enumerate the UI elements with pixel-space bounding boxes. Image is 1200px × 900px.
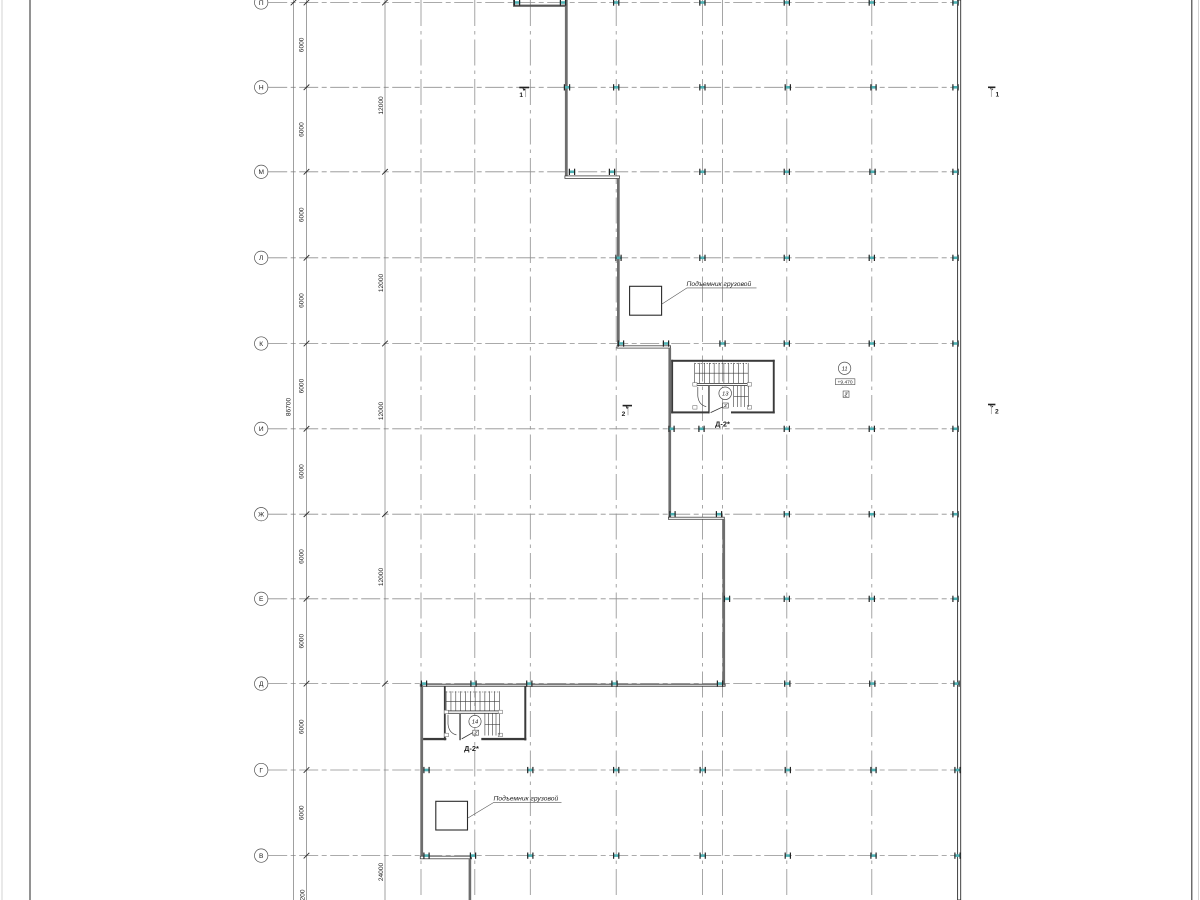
svg-text:6000: 6000: [299, 464, 306, 479]
svg-text:И: И: [259, 426, 264, 433]
svg-text:В: В: [259, 853, 264, 860]
svg-text:24000: 24000: [378, 863, 385, 882]
svg-text:2: 2: [622, 411, 626, 418]
svg-text:12000: 12000: [378, 402, 385, 421]
svg-text:Н: Н: [259, 85, 264, 92]
svg-text:86700: 86700: [286, 398, 293, 417]
svg-text:Д-2*: Д-2*: [464, 744, 479, 753]
svg-text:6000: 6000: [299, 293, 306, 308]
svg-text:14: 14: [472, 720, 478, 726]
svg-text:6000: 6000: [299, 634, 306, 649]
svg-text:6000: 6000: [299, 719, 306, 734]
svg-text:11: 11: [842, 367, 848, 373]
svg-text:6000: 6000: [299, 37, 306, 52]
svg-text:Подъемник грузовой: Подъемник грузовой: [687, 280, 752, 288]
svg-text:200: 200: [300, 889, 307, 900]
svg-text:12000: 12000: [378, 274, 385, 293]
svg-text:2: 2: [474, 730, 477, 735]
svg-text:6000: 6000: [299, 207, 306, 222]
svg-text:Д-2*: Д-2*: [715, 420, 730, 429]
svg-text:+9.470: +9.470: [838, 380, 853, 386]
svg-text:Д: Д: [259, 681, 264, 688]
svg-text:П: П: [259, 0, 264, 7]
svg-text:6000: 6000: [299, 805, 306, 820]
svg-text:1: 1: [519, 92, 523, 99]
svg-text:12000: 12000: [378, 568, 385, 587]
svg-text:Е: Е: [259, 596, 264, 603]
svg-text:Ж: Ж: [258, 512, 264, 519]
svg-text:Л: Л: [259, 255, 263, 262]
svg-text:1: 1: [995, 91, 999, 98]
svg-text:6000: 6000: [299, 378, 306, 393]
svg-text:2: 2: [724, 403, 727, 408]
svg-text:Подъемник грузовой: Подъемник грузовой: [494, 795, 559, 803]
svg-text:Г: Г: [259, 767, 263, 774]
svg-text:6000: 6000: [299, 122, 306, 137]
svg-text:К: К: [259, 341, 263, 348]
svg-text:12000: 12000: [378, 96, 385, 115]
svg-text:М: М: [258, 169, 264, 176]
svg-text:6000: 6000: [299, 549, 306, 564]
svg-text:13: 13: [722, 391, 729, 397]
svg-text:2: 2: [845, 392, 848, 398]
svg-text:2: 2: [995, 408, 999, 415]
